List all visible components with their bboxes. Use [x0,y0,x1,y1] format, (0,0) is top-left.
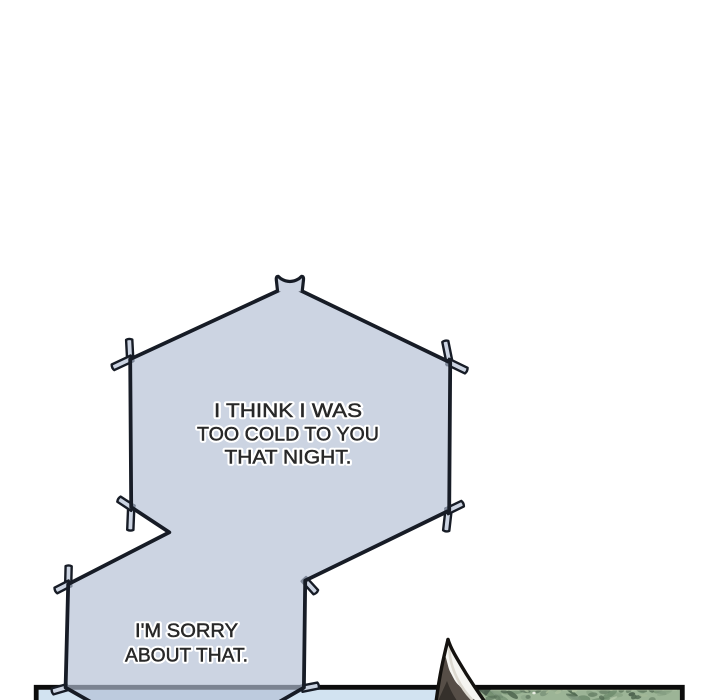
svg-text:I'M SORRY: I'M SORRY [135,620,238,642]
svg-text:ABOUT THAT.: ABOUT THAT. [125,644,248,666]
svg-text:THAT NIGHT.: THAT NIGHT. [225,446,352,468]
svg-text:TOO COLD TO YOU: TOO COLD TO YOU [197,423,379,445]
svg-text:I THINK I WAS: I THINK I WAS [214,400,362,422]
